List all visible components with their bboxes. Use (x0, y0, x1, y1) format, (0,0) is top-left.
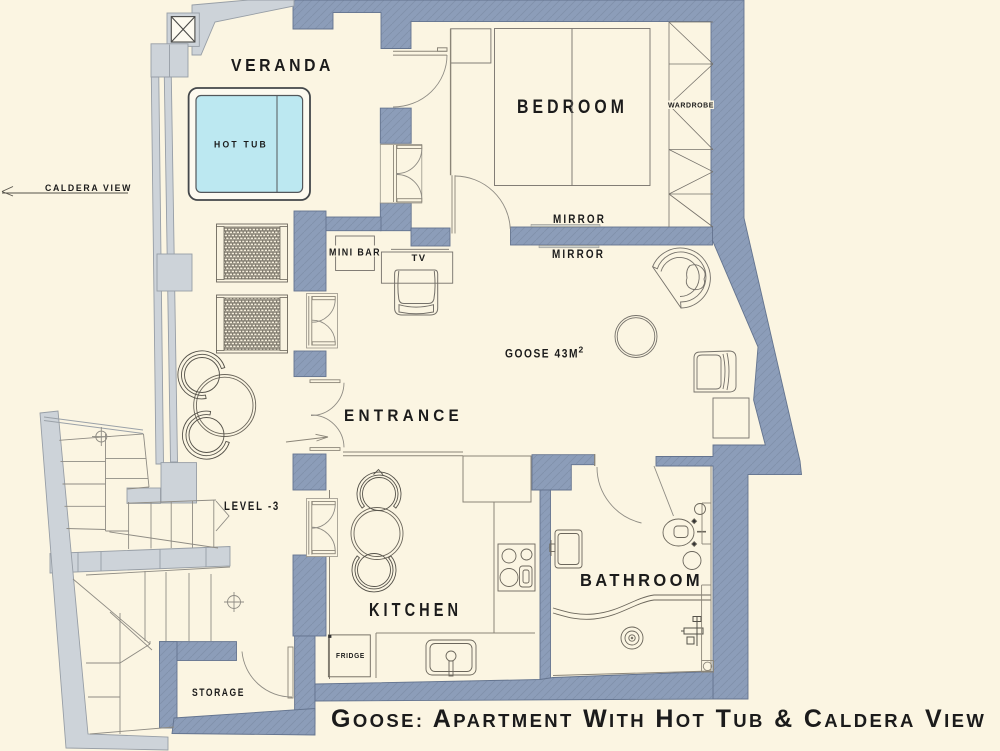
svg-text:BEDROOM: BEDROOM (517, 96, 628, 118)
svg-text:VERANDA: VERANDA (231, 55, 334, 75)
svg-text:MIRROR: MIRROR (553, 212, 606, 226)
svg-text:LEVEL -3: LEVEL -3 (224, 499, 280, 513)
svg-text:GOOSE: APARTMENT WITH HOT TUB: GOOSE: APARTMENT WITH HOT TUB & CALDERA … (331, 705, 987, 733)
svg-text:MIRROR: MIRROR (552, 247, 605, 261)
svg-text:BATHROOM: BATHROOM (580, 570, 703, 590)
svg-text:HOT TUB: HOT TUB (214, 140, 268, 151)
svg-text:GOOSE 43M: GOOSE 43M (505, 347, 579, 361)
svg-text:FRIDGE: FRIDGE (336, 651, 365, 660)
svg-text:STORAGE: STORAGE (192, 687, 245, 699)
svg-text:2: 2 (579, 345, 584, 355)
svg-text:CALDERA VIEW: CALDERA VIEW (45, 183, 132, 194)
svg-text:ENTRANCE: ENTRANCE (344, 407, 463, 425)
svg-text:TV: TV (412, 253, 427, 264)
svg-text:WARDROBE: WARDROBE (668, 101, 714, 110)
svg-text:KITCHEN: KITCHEN (369, 600, 462, 620)
svg-text:MINI BAR: MINI BAR (329, 248, 381, 259)
